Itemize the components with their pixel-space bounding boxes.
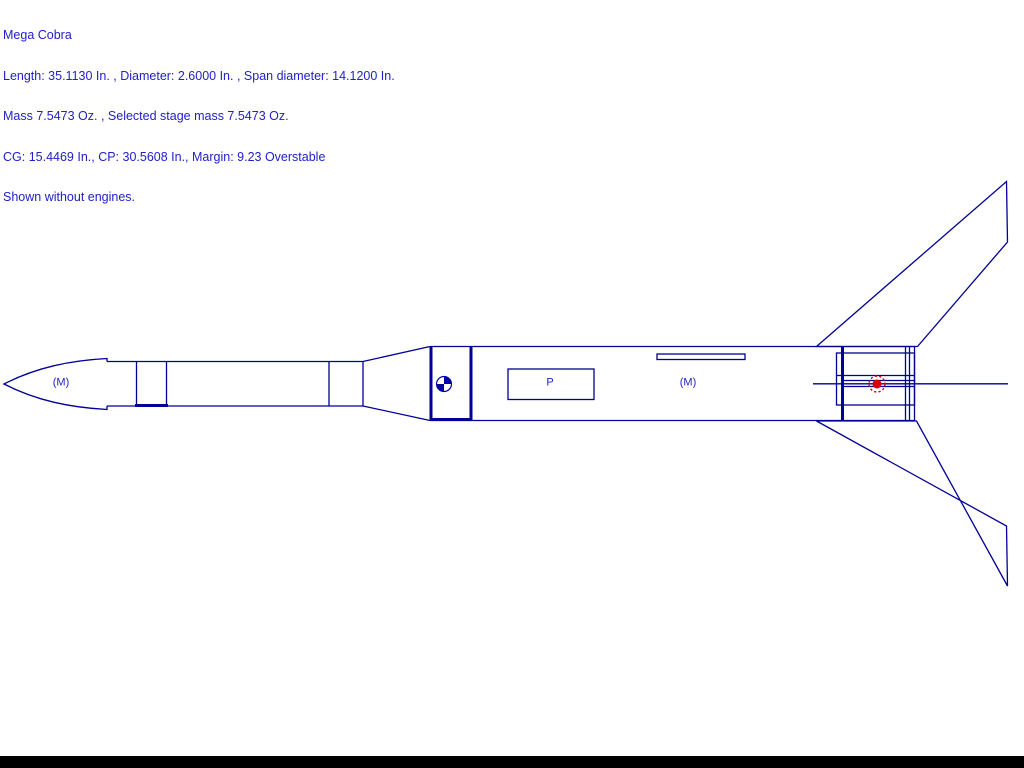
rocket-diagram: P (M) (M): [0, 0, 1024, 768]
transition-top[interactable]: [363, 347, 430, 362]
launch-lug[interactable]: [657, 354, 745, 360]
app-window: Mega Cobra Length: 35.1130 In. , Diamete…: [0, 0, 1024, 768]
body-mass-label: (M): [680, 377, 697, 389]
cg-marker[interactable]: [437, 377, 452, 392]
upper-fin[interactable]: [817, 182, 1008, 347]
motor-tube[interactable]: [837, 353, 915, 405]
bottom-letterbox-bar: [0, 756, 1024, 768]
nose-mass-label: (M): [53, 377, 70, 389]
transition-bottom[interactable]: [363, 406, 430, 421]
lower-fin[interactable]: [817, 421, 1008, 586]
parachute-label: P: [546, 377, 553, 389]
